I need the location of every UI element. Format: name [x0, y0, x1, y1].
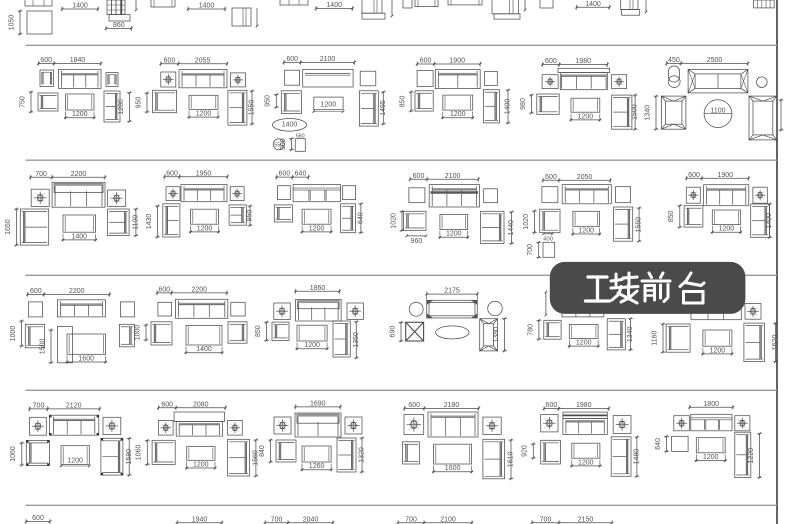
svg-text:1400: 1400	[72, 233, 88, 240]
svg-text:600: 600	[545, 174, 557, 181]
svg-text:1620: 1620	[772, 335, 779, 351]
svg-text:1200: 1200	[196, 111, 212, 118]
svg-text:2200: 2200	[192, 287, 208, 294]
svg-text:1320: 1320	[359, 447, 366, 463]
svg-text:600: 600	[30, 288, 42, 295]
svg-text:1050: 1050	[8, 15, 15, 31]
svg-text:1400: 1400	[766, 213, 773, 229]
svg-text:1950: 1950	[196, 170, 212, 177]
svg-text:1340: 1340	[627, 326, 634, 342]
svg-text:600: 600	[279, 171, 291, 178]
svg-text:2080: 2080	[193, 401, 209, 408]
svg-text:600: 600	[161, 401, 173, 408]
svg-text:1020: 1020	[390, 213, 397, 229]
svg-text:600: 600	[688, 172, 700, 179]
svg-text:1860: 1860	[310, 285, 326, 292]
svg-text:600: 600	[158, 287, 170, 294]
svg-text:1060: 1060	[10, 446, 17, 462]
svg-text:1400: 1400	[282, 121, 298, 128]
svg-text:2040: 2040	[303, 516, 319, 523]
svg-text:1480: 1480	[634, 449, 641, 465]
svg-text:1060: 1060	[136, 445, 143, 461]
svg-text:500: 500	[280, 138, 287, 150]
svg-text:1580: 1580	[126, 449, 133, 465]
svg-text:1280: 1280	[118, 99, 125, 115]
svg-text:1220: 1220	[748, 448, 755, 464]
svg-text:1440: 1440	[508, 220, 515, 236]
svg-text:850: 850	[668, 210, 675, 222]
svg-text:2100: 2100	[320, 56, 336, 63]
svg-text:1690: 1690	[310, 401, 326, 408]
svg-text:1340: 1340	[644, 105, 651, 121]
svg-text:600: 600	[32, 515, 44, 522]
svg-text:1400: 1400	[326, 2, 342, 9]
svg-text:600: 600	[413, 173, 425, 180]
svg-text:1980: 1980	[575, 58, 591, 65]
svg-text:2500: 2500	[707, 57, 723, 64]
svg-text:2100: 2100	[440, 516, 456, 523]
svg-text:950: 950	[135, 97, 142, 109]
svg-text:1200: 1200	[578, 459, 594, 466]
svg-text:1430: 1430	[146, 214, 153, 230]
svg-text:1100: 1100	[133, 215, 140, 230]
svg-text:600: 600	[164, 57, 176, 64]
svg-text:2180: 2180	[444, 402, 460, 409]
svg-text:690: 690	[389, 326, 396, 338]
svg-text:640: 640	[358, 212, 365, 224]
svg-text:1020: 1020	[523, 214, 530, 230]
svg-text:750: 750	[19, 96, 26, 108]
svg-text:1200: 1200	[304, 342, 320, 349]
svg-text:1980: 1980	[576, 402, 592, 409]
svg-text:2055: 2055	[195, 57, 211, 64]
svg-text:640: 640	[655, 438, 662, 450]
svg-text:2200: 2200	[69, 288, 85, 295]
svg-text:1550: 1550	[636, 217, 643, 233]
svg-text:1200: 1200	[450, 111, 466, 118]
svg-text:1600: 1600	[78, 355, 94, 362]
svg-text:950: 950	[265, 95, 272, 107]
svg-text:1200: 1200	[193, 461, 209, 468]
svg-text:2175: 2175	[444, 288, 460, 295]
svg-text:840: 840	[259, 445, 266, 457]
svg-text:700: 700	[271, 516, 283, 523]
svg-text:600: 600	[166, 170, 178, 177]
svg-text:1200: 1200	[710, 347, 726, 354]
svg-text:1550: 1550	[249, 100, 256, 116]
svg-text:1400: 1400	[196, 346, 212, 353]
svg-text:1800: 1800	[703, 401, 719, 408]
svg-text:600: 600	[286, 56, 298, 63]
svg-text:640: 640	[295, 171, 307, 178]
svg-text:1200: 1200	[72, 111, 88, 118]
svg-text:1350: 1350	[353, 332, 360, 348]
svg-text:1160: 1160	[651, 330, 658, 345]
svg-text:1495: 1495	[380, 100, 387, 116]
svg-text:1000: 1000	[134, 325, 141, 341]
svg-text:700: 700	[527, 244, 534, 256]
svg-text:1400: 1400	[585, 1, 601, 8]
svg-text:1000: 1000	[10, 326, 17, 342]
svg-text:1200: 1200	[703, 454, 719, 461]
svg-text:1610: 1610	[508, 452, 515, 468]
svg-text:580: 580	[296, 133, 305, 139]
svg-text:2100: 2100	[445, 173, 461, 180]
svg-text:1200: 1200	[309, 225, 325, 232]
svg-text:1650: 1650	[5, 219, 12, 235]
svg-text:1400: 1400	[72, 3, 88, 10]
svg-text:600: 600	[40, 57, 52, 64]
svg-text:2150: 2150	[578, 516, 594, 523]
svg-text:400: 400	[543, 237, 553, 243]
svg-text:1200: 1200	[321, 102, 337, 109]
svg-text:600: 600	[420, 58, 432, 65]
svg-text:700: 700	[405, 516, 417, 523]
svg-text:1600: 1600	[445, 465, 461, 472]
svg-text:1100: 1100	[710, 108, 725, 115]
svg-text:600: 600	[546, 402, 558, 409]
svg-text:2200: 2200	[71, 171, 87, 178]
svg-text:1200: 1200	[67, 458, 83, 465]
svg-text:1200: 1200	[576, 340, 592, 347]
svg-text:700: 700	[33, 403, 45, 410]
svg-text:980: 980	[520, 98, 527, 110]
svg-text:850: 850	[400, 96, 407, 108]
svg-text:1200: 1200	[578, 227, 594, 234]
svg-text:450: 450	[668, 57, 680, 64]
svg-text:1500: 1500	[632, 104, 639, 120]
svg-text:1200: 1200	[446, 231, 462, 238]
svg-text:1380: 1380	[493, 327, 500, 343]
svg-text:1200: 1200	[719, 226, 735, 233]
svg-text:1260: 1260	[309, 463, 325, 470]
svg-text:1900: 1900	[449, 58, 465, 65]
svg-text:1500: 1500	[39, 339, 46, 355]
svg-text:1200: 1200	[578, 113, 594, 120]
svg-text:700: 700	[35, 171, 47, 178]
svg-text:860: 860	[113, 22, 125, 29]
svg-text:1840: 1840	[70, 57, 86, 64]
svg-text:1400: 1400	[199, 3, 215, 10]
svg-text:920: 920	[522, 445, 529, 457]
svg-text:960: 960	[411, 238, 423, 245]
svg-text:1200: 1200	[197, 225, 213, 232]
svg-text:850: 850	[255, 325, 262, 337]
svg-text:1940: 1940	[192, 516, 208, 523]
svg-text:600: 600	[408, 402, 420, 409]
svg-text:1400: 1400	[505, 99, 512, 115]
svg-text:600: 600	[545, 58, 557, 65]
svg-text:780: 780	[527, 324, 534, 336]
svg-text:2120: 2120	[66, 403, 82, 410]
svg-text:700: 700	[540, 516, 552, 523]
svg-text:950: 950	[247, 210, 254, 222]
svg-text:1900: 1900	[718, 172, 734, 179]
svg-text:2050: 2050	[577, 174, 593, 181]
